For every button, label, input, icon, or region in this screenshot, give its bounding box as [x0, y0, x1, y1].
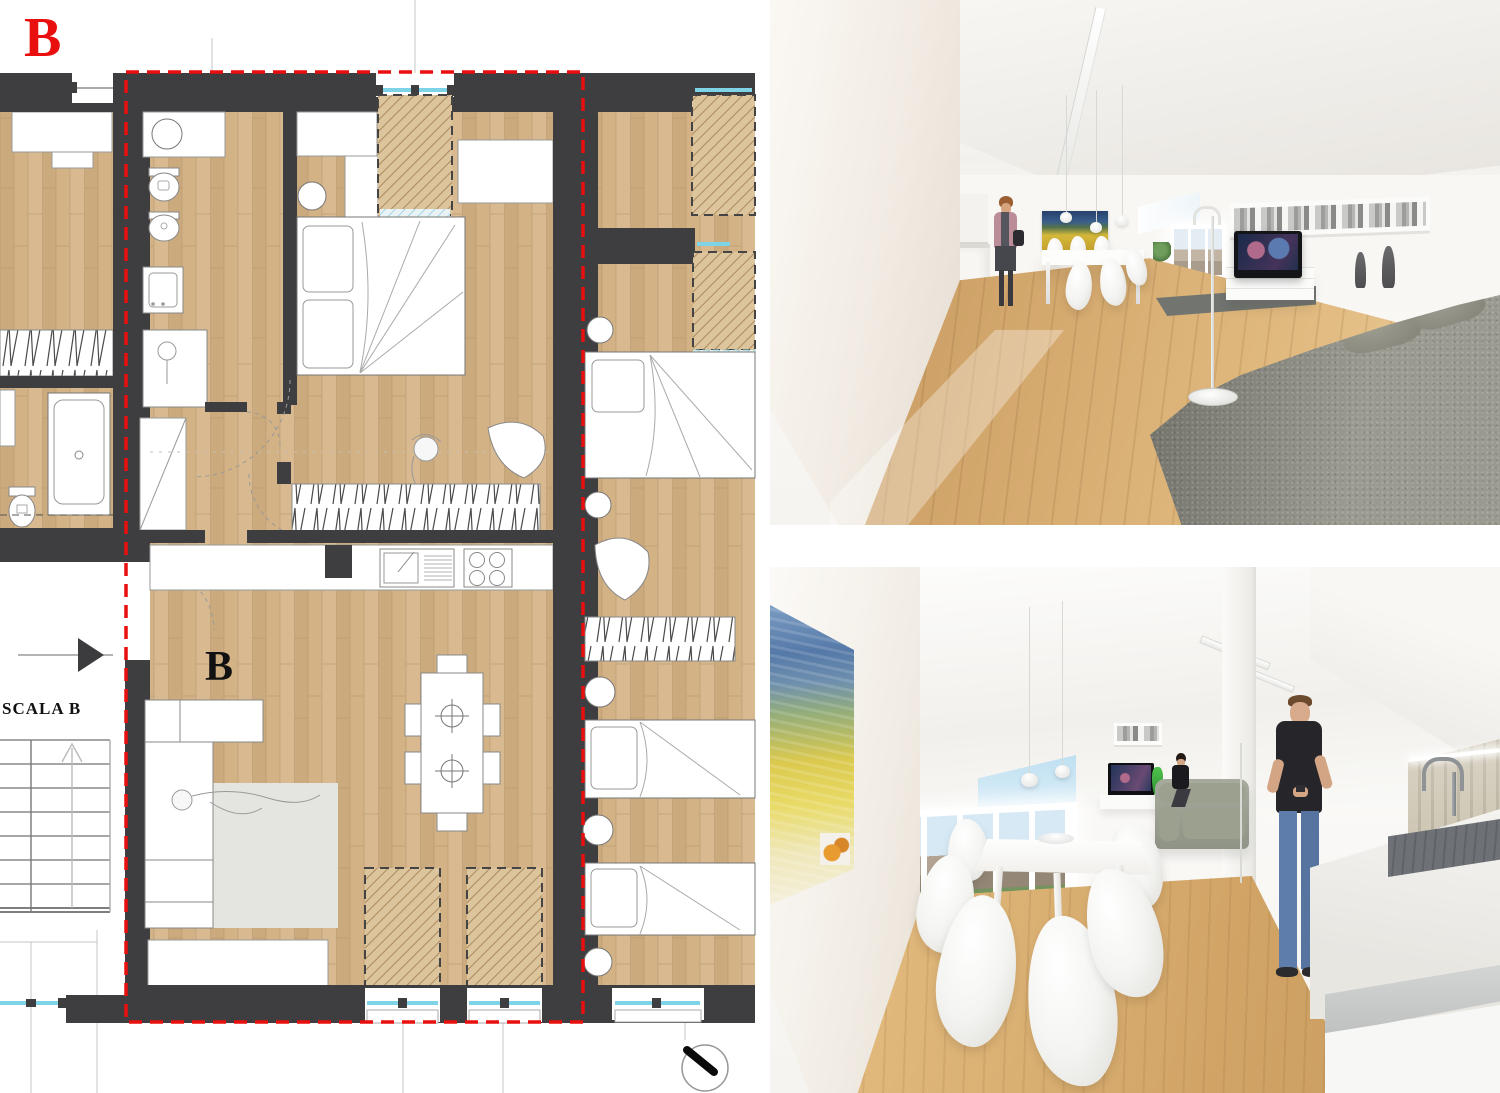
dormer-hatch: [467, 868, 542, 996]
neighbor-apartment-left: [0, 112, 113, 562]
vase: [1382, 246, 1395, 288]
bedside-table: [298, 182, 326, 210]
table-leg: [1046, 262, 1050, 304]
closet-rack: [292, 484, 540, 534]
bowl: [1038, 833, 1074, 844]
tv-screen: [1111, 765, 1151, 791]
stairs: [0, 740, 110, 912]
dormer-hatch: [378, 95, 452, 215]
sitting-woman: [1168, 753, 1194, 815]
entrance-arrow-icon: [18, 638, 122, 672]
toilet: [149, 168, 179, 201]
bidet: [149, 212, 179, 241]
washbasin: [143, 267, 183, 313]
books: [1234, 202, 1426, 233]
floor-plan: B: [0, 0, 760, 1093]
pendant-cord: [1096, 90, 1097, 223]
pendant-lamp: [1060, 212, 1072, 223]
north-arrow-icon: [682, 1045, 728, 1091]
sheet-label: B: [24, 7, 61, 69]
neighbor-apartment-right: [583, 90, 755, 1023]
standing-woman: [988, 196, 1024, 314]
rendering-living-room: [770, 0, 1500, 525]
pendant-cord: [1122, 85, 1123, 216]
drawing-sheet: B: [0, 0, 1500, 1093]
pendant-cord: [1066, 95, 1067, 213]
dormer-hatch: [365, 868, 440, 996]
unit-label: B: [205, 644, 233, 690]
pendant-cord: [1029, 607, 1030, 775]
bathtub: [48, 393, 110, 515]
pendant-lamp: [1021, 773, 1038, 787]
bed: [585, 352, 755, 478]
shower: [143, 330, 207, 407]
tv: [1108, 763, 1154, 797]
pendant-lamp: [1055, 765, 1070, 778]
bed: [585, 863, 755, 935]
faucet-spout: [1452, 772, 1456, 816]
cooktop: [464, 549, 512, 587]
dormer-hatch: [693, 252, 755, 350]
window: [376, 73, 454, 97]
stair-label: SCALA B: [2, 699, 81, 718]
floor-lamp-arm: [1193, 206, 1221, 225]
small-artwork: [820, 833, 850, 865]
kitchen-sink: [380, 549, 454, 587]
floor-lamp-base: [1188, 388, 1238, 406]
pendant-cord: [1062, 601, 1063, 767]
stair-window: [0, 998, 66, 1008]
washbasin-round: [152, 119, 182, 149]
bookshelf: [1114, 723, 1162, 747]
floor-lamp: [1240, 743, 1242, 883]
wardrobe-rack: [0, 330, 113, 376]
toilet: [9, 487, 35, 527]
double-bed: [297, 217, 465, 375]
vase: [1355, 252, 1366, 288]
low-cabinet: [148, 940, 328, 988]
closet-rack: [585, 617, 735, 661]
faucet-icon: [1422, 757, 1464, 791]
dormer-hatch: [692, 95, 755, 215]
bed: [585, 720, 755, 798]
window: [467, 988, 542, 1023]
pendant-lamp: [1116, 215, 1128, 226]
window: [365, 988, 440, 1023]
wall-column: [1222, 567, 1256, 907]
tv-screen: [1238, 234, 1298, 270]
apartment-b: B: [113, 73, 585, 1023]
stairwell: SCALA B: [0, 638, 125, 1023]
kitchen: [125, 530, 553, 590]
rendering-dining-kitchen: [770, 567, 1500, 1093]
tv: [1234, 231, 1302, 278]
window: [612, 988, 704, 1022]
books: [1117, 726, 1159, 741]
pendant-lamp: [1090, 222, 1102, 233]
media-cabinet: [1100, 795, 1162, 809]
plant: [1153, 242, 1171, 262]
floor-lamp-pole: [1211, 216, 1214, 396]
